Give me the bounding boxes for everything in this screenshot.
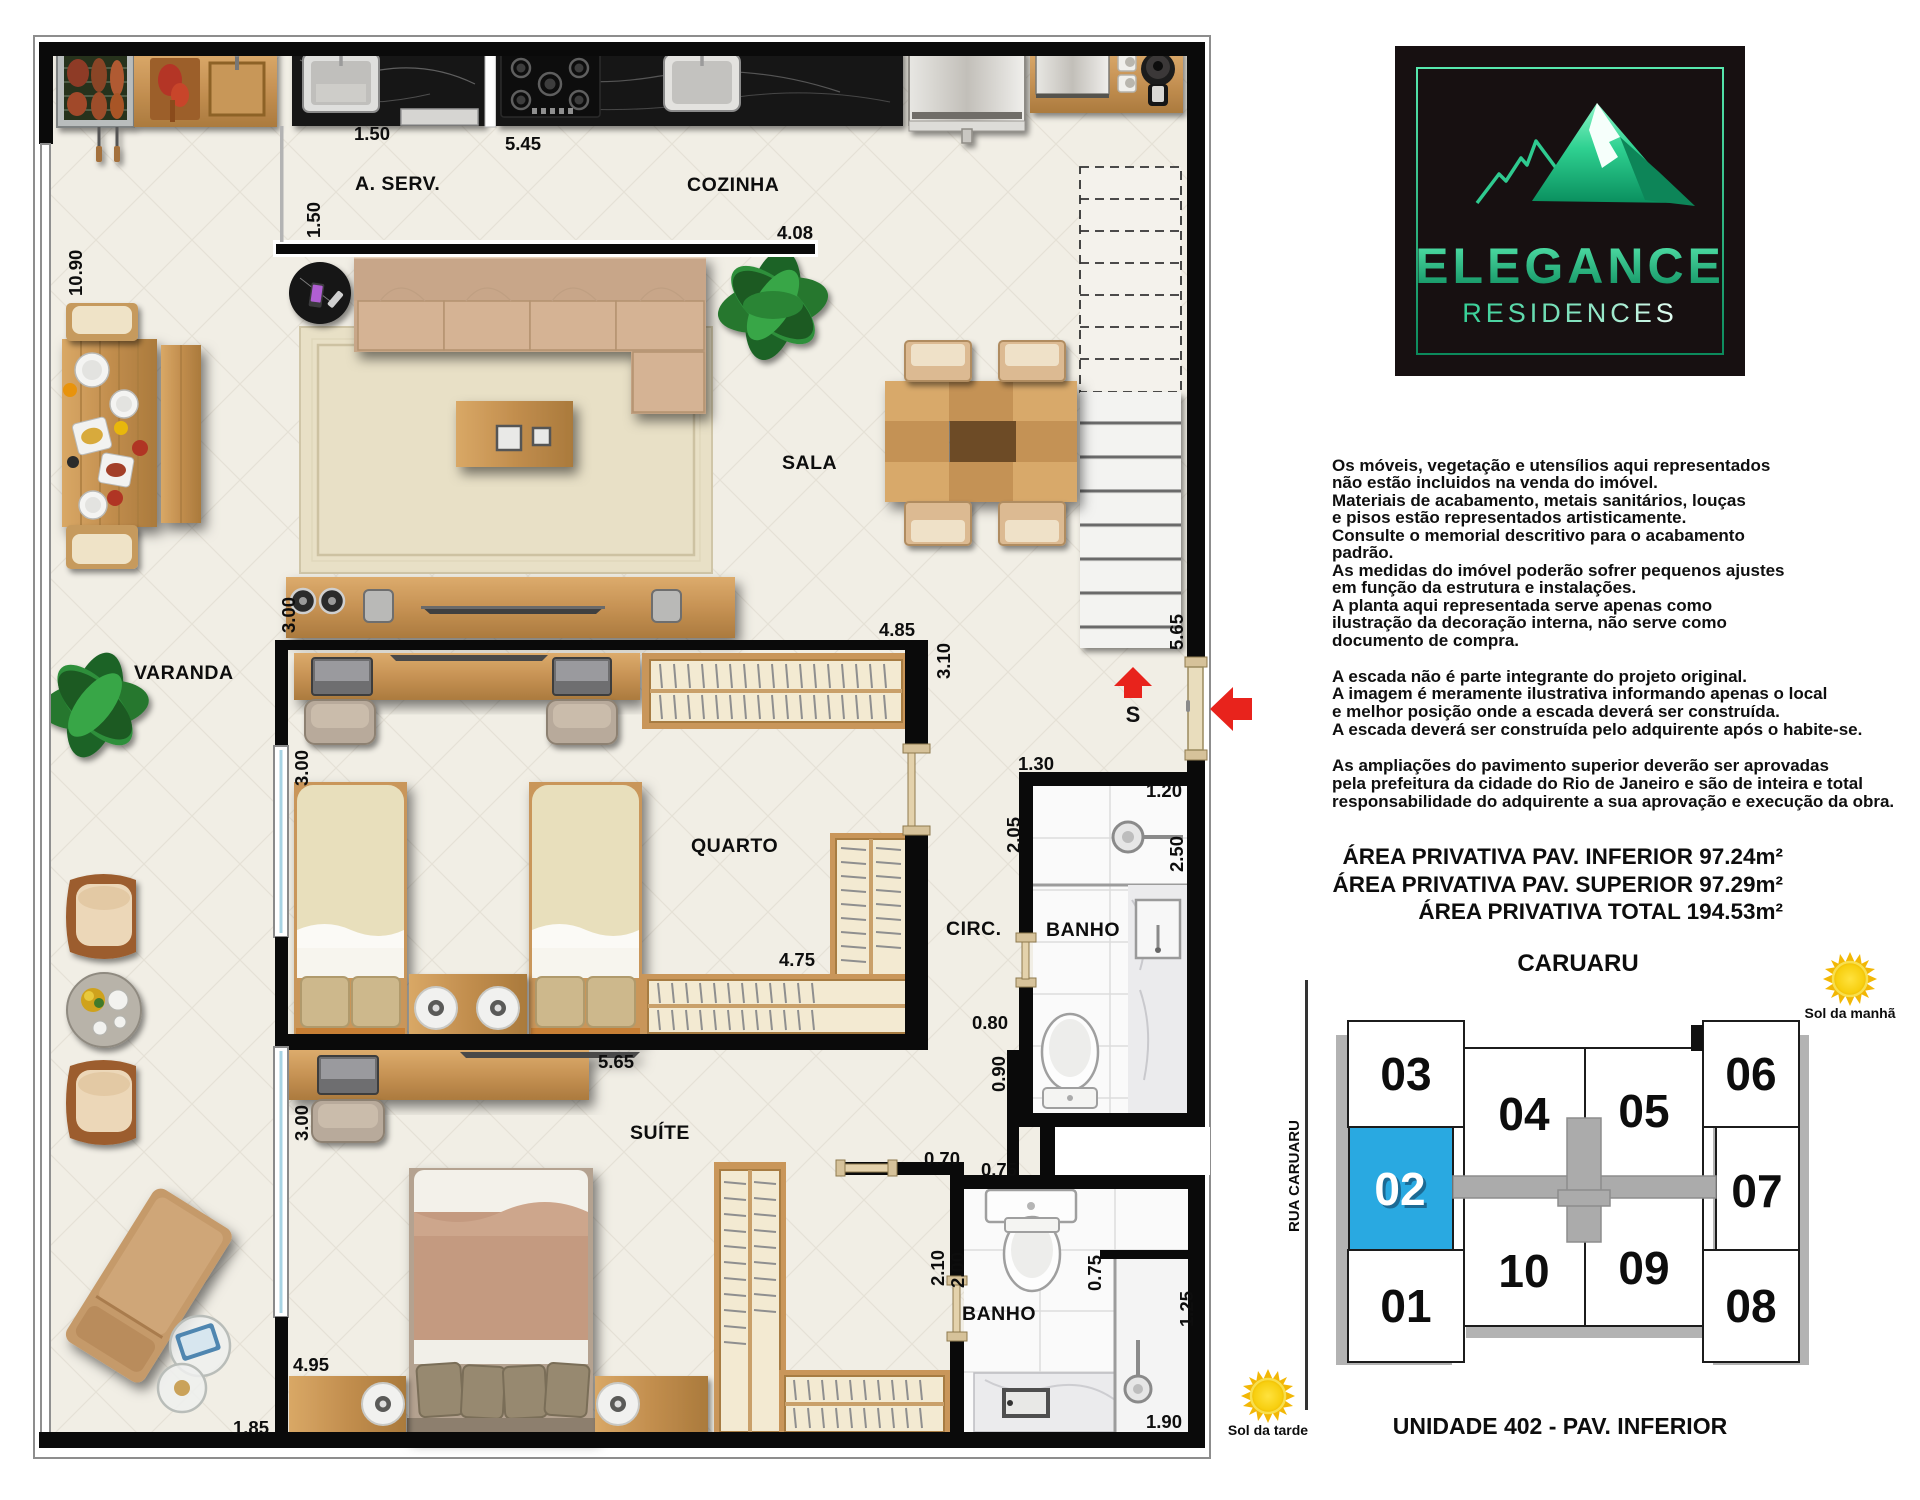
svg-text:COZINHA: COZINHA xyxy=(687,174,779,196)
svg-text:1.25: 1.25 xyxy=(1176,1291,1197,1327)
svg-text:SUÍTE: SUÍTE xyxy=(630,1121,690,1144)
svg-text:documento de compra.: documento de compra. xyxy=(1332,631,1519,650)
svg-text:BANHO: BANHO xyxy=(1046,919,1120,941)
svg-text:e melhor posição onde a escada: e melhor posição onde a escada deverá se… xyxy=(1332,702,1780,721)
svg-text:3.00: 3.00 xyxy=(278,597,299,633)
svg-text:5.65: 5.65 xyxy=(1166,614,1187,650)
svg-text:ilustração da decoração intern: ilustração da decoração interna, não ser… xyxy=(1332,613,1727,632)
svg-text:CARUARU: CARUARU xyxy=(1517,950,1638,977)
svg-text:QUARTO: QUARTO xyxy=(691,835,778,857)
svg-text:04: 04 xyxy=(1498,1088,1550,1140)
svg-text:ÁREA PRIVATIVA TOTAL 194.53m²: ÁREA PRIVATIVA TOTAL 194.53m² xyxy=(1418,899,1783,924)
svg-text:padrão.: padrão. xyxy=(1332,543,1393,562)
svg-text:5.45: 5.45 xyxy=(505,133,541,154)
svg-text:0.75: 0.75 xyxy=(1084,1255,1105,1291)
svg-text:Sol da tarde: Sol da tarde xyxy=(1228,1422,1308,1438)
svg-text:09: 09 xyxy=(1618,1242,1669,1294)
svg-text:01: 01 xyxy=(1380,1280,1431,1332)
svg-text:S: S xyxy=(1126,702,1141,727)
svg-text:0.70: 0.70 xyxy=(924,1148,960,1169)
svg-text:0.90: 0.90 xyxy=(988,1056,1009,1092)
svg-text:VARANDA: VARANDA xyxy=(134,662,234,684)
svg-text:07: 07 xyxy=(1731,1165,1782,1217)
svg-text:SALA: SALA xyxy=(782,452,837,474)
svg-text:responsabilidade do adquirente: responsabilidade do adquirente a sua apr… xyxy=(1332,792,1894,811)
svg-text:2.05: 2.05 xyxy=(1003,817,1024,853)
svg-text:A. SERV.: A. SERV. xyxy=(355,173,440,195)
svg-text:0.75: 0.75 xyxy=(981,1159,1017,1180)
svg-text:2.10: 2.10 xyxy=(927,1250,948,1286)
svg-text:ELEGANCE: ELEGANCE xyxy=(1415,238,1725,294)
svg-text:5.65: 5.65 xyxy=(598,1051,634,1072)
svg-text:RUA CARUARU: RUA CARUARU xyxy=(1286,1120,1303,1232)
svg-text:BANHO: BANHO xyxy=(962,1303,1036,1325)
svg-text:4.95: 4.95 xyxy=(293,1354,329,1375)
svg-text:2.50: 2.50 xyxy=(1166,836,1187,872)
svg-text:1.30: 1.30 xyxy=(1018,753,1054,774)
svg-text:3.10: 3.10 xyxy=(933,643,954,679)
svg-text:pela prefeitura da cidade do R: pela prefeitura da cidade do Rio de Jane… xyxy=(1332,774,1863,793)
svg-text:1.50: 1.50 xyxy=(354,123,390,144)
svg-text:ÁREA PRIVATIVA PAV. INFERIOR 9: ÁREA PRIVATIVA PAV. INFERIOR 97.24m² xyxy=(1342,844,1783,869)
svg-text:3.00: 3.00 xyxy=(291,750,312,786)
svg-text:A escada deverá ser construída: A escada deverá ser construída pelo adqu… xyxy=(1332,720,1862,739)
svg-text:02: 02 xyxy=(1374,1163,1425,1215)
svg-text:ÁREA PRIVATIVA PAV. SUPERIOR 9: ÁREA PRIVATIVA PAV. SUPERIOR 97.29m² xyxy=(1332,872,1783,897)
svg-text:08: 08 xyxy=(1725,1280,1776,1332)
svg-text:1.50: 1.50 xyxy=(303,202,324,238)
svg-text:em função da estrutura e insta: em função da estrutura e instalações. xyxy=(1332,578,1636,597)
svg-text:03: 03 xyxy=(1380,1048,1431,1100)
svg-text:não estão incluidos na venda d: não estão incluidos na venda do imóvel. xyxy=(1332,473,1658,492)
svg-text:e pisos estão representados ar: e pisos estão representados artisticamen… xyxy=(1332,508,1686,527)
svg-text:3.00: 3.00 xyxy=(291,1105,312,1141)
svg-text:4.85: 4.85 xyxy=(879,619,915,640)
svg-text:10: 10 xyxy=(1498,1245,1549,1297)
svg-text:1.90: 1.90 xyxy=(1146,1411,1182,1432)
svg-text:2.00: 2.00 xyxy=(947,1252,968,1288)
svg-text:CIRC.: CIRC. xyxy=(946,918,1002,940)
svg-text:1.85: 1.85 xyxy=(233,1417,269,1438)
svg-text:4.75: 4.75 xyxy=(779,949,815,970)
svg-text:RESIDENCES: RESIDENCES xyxy=(1462,298,1678,328)
svg-text:10.90: 10.90 xyxy=(65,250,86,296)
svg-text:06: 06 xyxy=(1725,1048,1776,1100)
svg-text:0.80: 0.80 xyxy=(972,1012,1008,1033)
svg-text:Consulte o memorial descritivo: Consulte o memorial descritivo para o ac… xyxy=(1332,526,1745,545)
svg-text:As ampliações do pavimento sup: As ampliações do pavimento superior deve… xyxy=(1332,756,1829,775)
svg-text:4.08: 4.08 xyxy=(777,222,813,243)
svg-text:A imagem é meramente ilustrati: A imagem é meramente ilustrativa informa… xyxy=(1332,684,1827,703)
svg-text:UNIDADE 402 - PAV. INFERIOR: UNIDADE 402 - PAV. INFERIOR xyxy=(1393,1413,1728,1439)
svg-text:1.20: 1.20 xyxy=(1146,780,1182,801)
svg-text:05: 05 xyxy=(1618,1085,1669,1137)
svg-text:Sol da manhã: Sol da manhã xyxy=(1804,1005,1895,1021)
